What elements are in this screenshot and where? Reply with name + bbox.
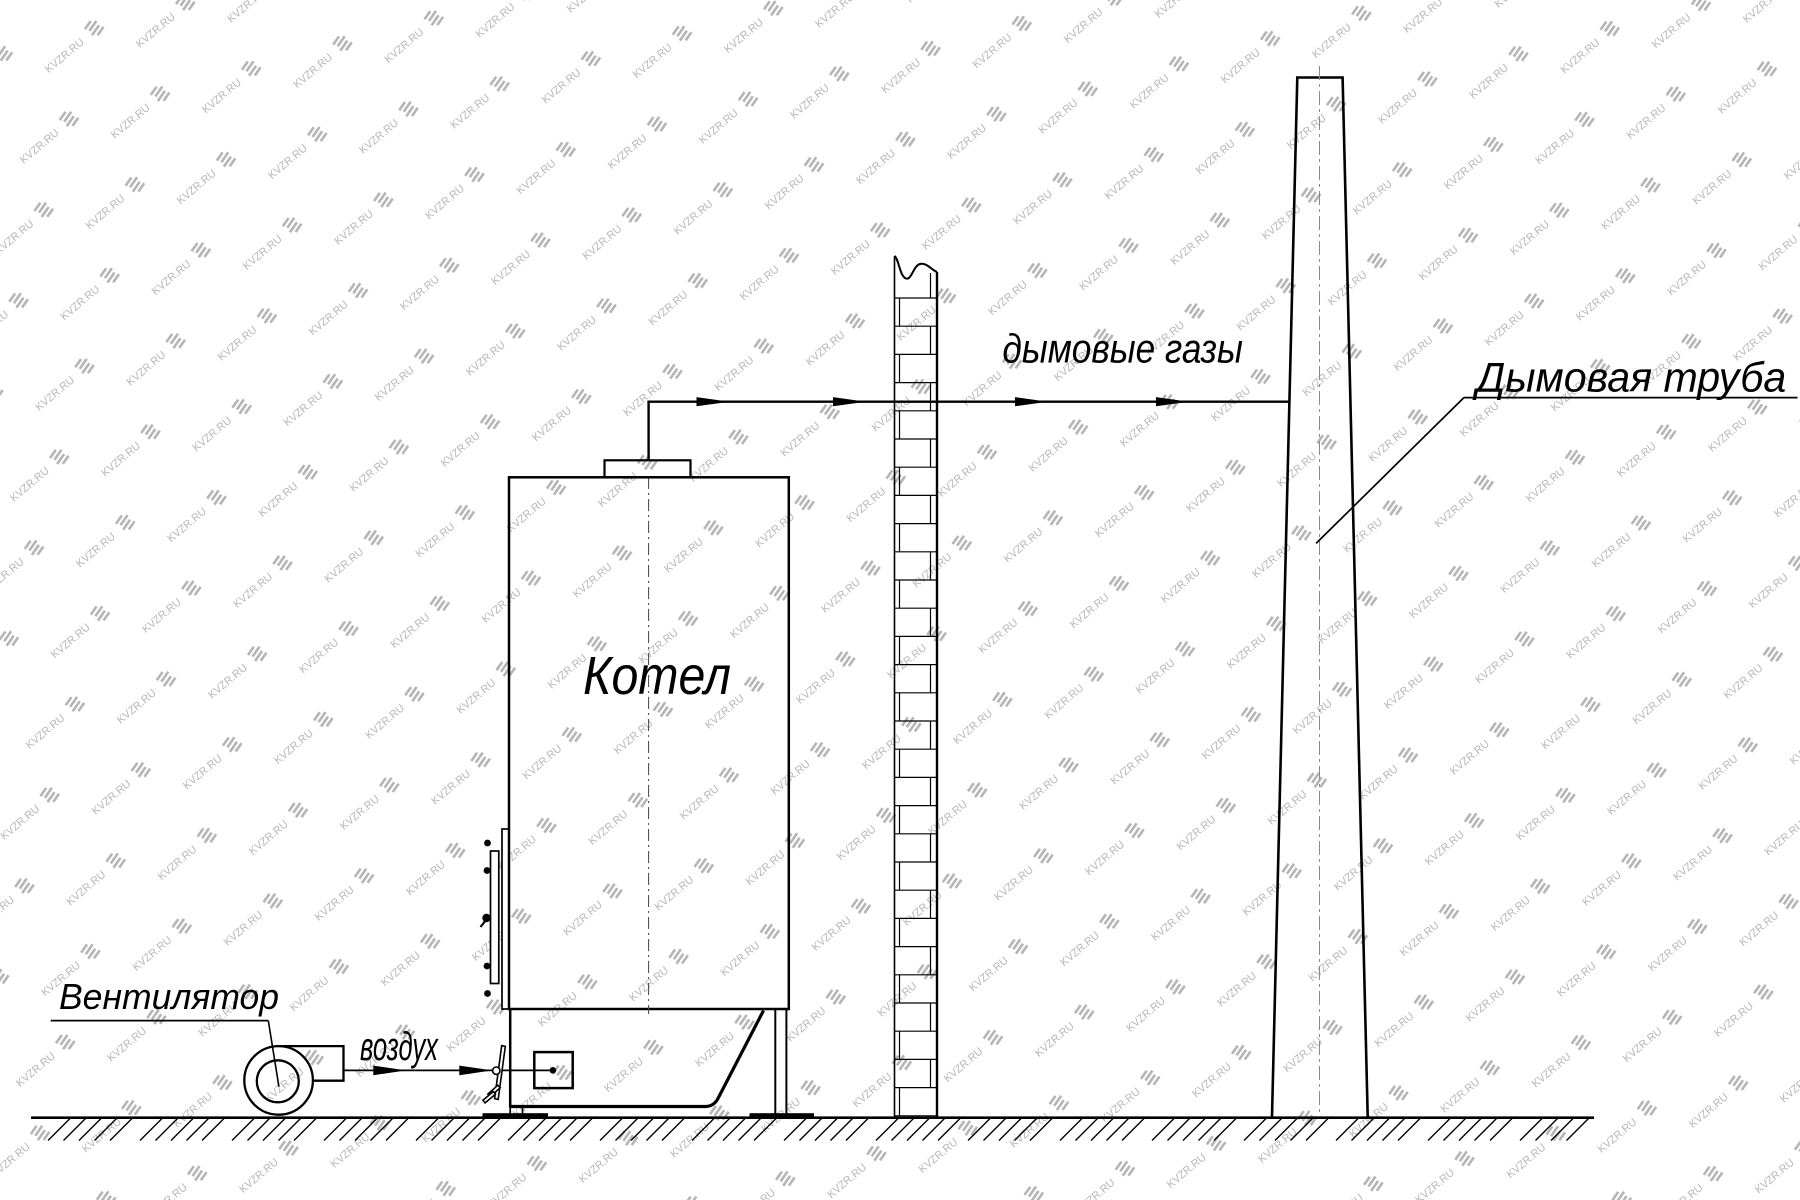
svg-text:Дымовая труба: Дымовая труба: [1472, 353, 1786, 400]
svg-text:дымовые газы: дымовые газы: [1002, 326, 1243, 372]
svg-text:воздух: воздух: [360, 1025, 439, 1069]
svg-text:Котел: Котел: [583, 646, 731, 706]
svg-text:Вентилятор: Вентилятор: [59, 976, 279, 1017]
